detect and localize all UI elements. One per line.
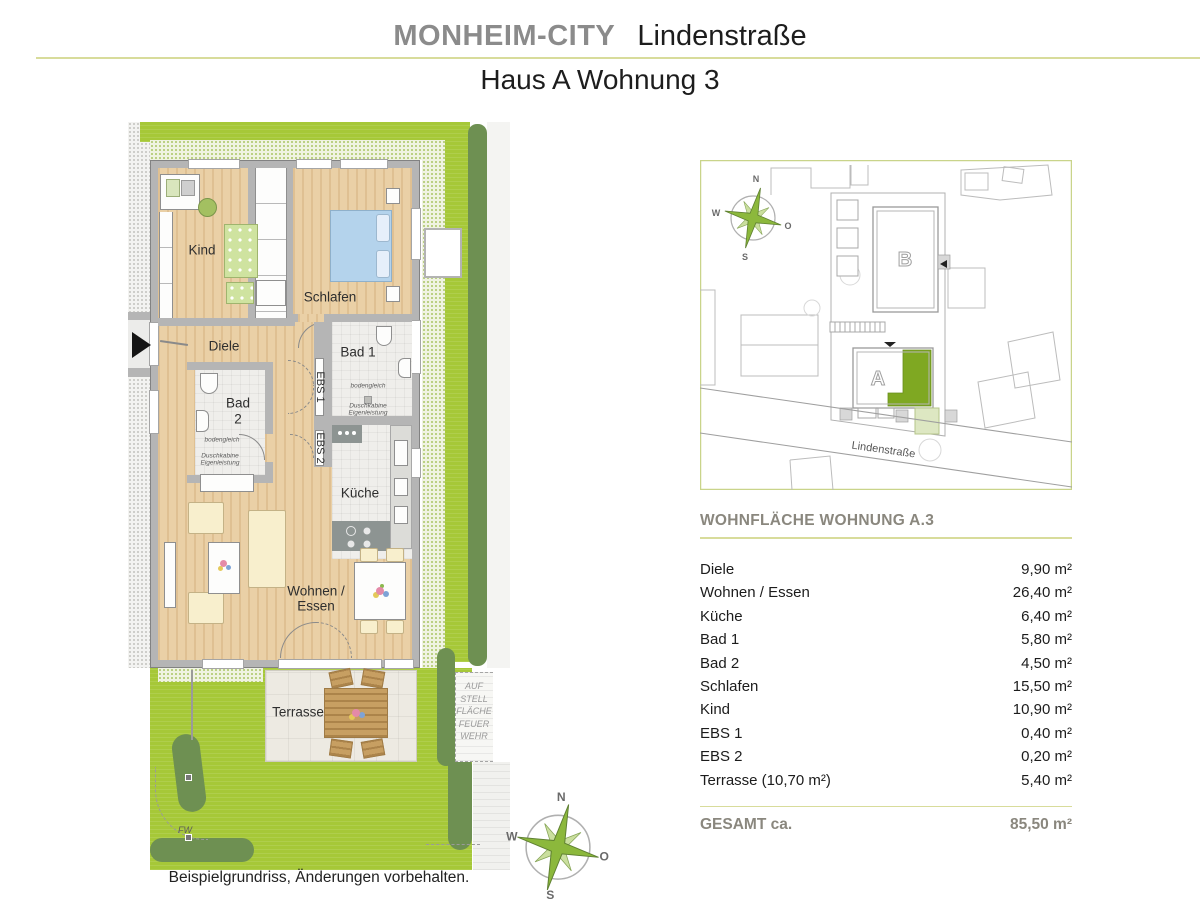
row-value: 0,20 m² <box>1021 748 1072 771</box>
hedge-right <box>468 124 487 666</box>
row-label: Bad 1 <box>700 631 739 654</box>
wall-bad1-bottom <box>324 416 412 425</box>
kitchen-appliance <box>394 478 408 496</box>
compass-label-s: S <box>546 888 554 900</box>
table-row: Terrasse (10,70 m²)5,40 m² <box>700 772 1072 795</box>
entrance-wall-stub <box>128 368 150 377</box>
flower-decor <box>376 587 384 595</box>
window <box>411 208 421 260</box>
room-label-bad2-num: 2 <box>234 412 242 427</box>
disclaimer-caption: Beispielgrundriss, Änderungen vorbehalte… <box>128 869 510 887</box>
offsite-area <box>487 122 510 668</box>
kitchen-counter-corner <box>332 425 362 443</box>
area-table-rule <box>700 537 1072 539</box>
siteplan-compass-o: O <box>784 221 791 231</box>
unit-subtitle: Haus A Wohnung 3 <box>0 64 1200 96</box>
window <box>411 320 421 374</box>
window <box>149 390 159 434</box>
room-label-bad2: Bad <box>226 396 250 411</box>
firelane-line: STELL <box>455 693 493 706</box>
firelane-line: AUF <box>455 680 493 693</box>
wall-bad2-top <box>187 362 273 370</box>
table-row: EBS 20,20 m² <box>700 748 1072 771</box>
firelane-line: FLÄCHE <box>455 705 493 718</box>
room-label-kind: Kind <box>188 243 215 258</box>
terrace-door <box>278 659 382 669</box>
lawn-top <box>140 122 470 142</box>
nightstand <box>386 188 400 204</box>
door-gap-schlafen <box>298 314 324 322</box>
page: MONHEIM-CITY Lindenstraße Haus A Wohnung… <box>0 0 1200 900</box>
row-label: Schlafen <box>700 678 758 701</box>
building-b-label: B <box>898 249 912 271</box>
dining-chair <box>386 620 404 634</box>
wall-kind-bottom <box>158 318 295 326</box>
bad2-note: bodengleich <box>204 437 239 444</box>
room-label-diele: Diele <box>209 339 240 354</box>
entrance-wall-stub <box>128 312 150 320</box>
terrace-door <box>202 659 244 669</box>
gravel-top <box>150 140 422 160</box>
room-label-wohnen1: Wohnen / <box>287 584 345 599</box>
gravel-right <box>422 140 445 670</box>
compass-star <box>507 794 609 900</box>
kitchen-sink <box>394 440 408 466</box>
row-value: 0,40 m² <box>1021 725 1072 748</box>
floor-plan: AUF STELL FLÄCHE FEUER WEHR FW <box>128 122 510 870</box>
area-table-total: GESAMT ca. 85,50 m² <box>700 807 1072 834</box>
flower-decor <box>352 709 360 717</box>
terrace-chair <box>329 739 353 759</box>
firelane-line: FEUER <box>455 718 493 731</box>
row-label: Wohnen / Essen <box>700 584 810 607</box>
compass-rose: N W O S <box>503 790 613 900</box>
bad2-note: Eigenleistung <box>200 460 239 467</box>
header-divider <box>36 57 1200 59</box>
table-row: Wohnen / Essen26,40 m² <box>700 584 1072 607</box>
area-table-rows: Diele9,90 m² Wohnen / Essen26,40 m² Küch… <box>700 561 1072 795</box>
row-label: Küche <box>700 608 743 631</box>
hedge-low <box>448 754 472 850</box>
table-row: Küche6,40 m² <box>700 608 1072 631</box>
desk-papers <box>166 179 180 197</box>
table-row: Kind10,90 m² <box>700 701 1072 724</box>
dining-chair <box>360 548 378 562</box>
bad1-note: Eigenleistung <box>348 410 387 417</box>
table-row: EBS 10,40 m² <box>700 725 1072 748</box>
sink <box>196 410 209 432</box>
window <box>340 159 388 169</box>
total-label: GESAMT ca. <box>700 816 792 834</box>
stairs-strip <box>830 322 885 332</box>
boundary-dashed <box>426 844 480 845</box>
row-value: 6,40 m² <box>1021 608 1072 631</box>
room-label-schlafen: Schlafen <box>304 290 357 305</box>
window <box>188 159 240 169</box>
compass-star-major <box>507 794 609 900</box>
gravel-under-wall <box>158 668 263 682</box>
terrace-door <box>384 659 414 669</box>
building-a-label: A <box>871 368 885 390</box>
row-value: 4,50 m² <box>1021 655 1072 678</box>
table-row: Schlafen15,50 m² <box>700 678 1072 701</box>
table-row: Diele9,90 m² <box>700 561 1072 584</box>
row-value: 9,90 m² <box>1021 561 1072 584</box>
row-label: EBS 2 <box>700 748 743 771</box>
desk-papers <box>181 180 195 196</box>
row-label: Kind <box>700 701 730 724</box>
table-row: Bad 15,80 m² <box>700 631 1072 654</box>
garage-row <box>837 200 858 276</box>
bush-band <box>150 838 254 862</box>
kitchen-appliance <box>394 506 408 524</box>
armchair <box>188 592 224 624</box>
row-value: 10,90 m² <box>1013 701 1072 724</box>
siteplan-compass-s: S <box>742 252 748 262</box>
room-label-bad1: Bad 1 <box>340 345 375 360</box>
total-value: 85,50 m² <box>1010 816 1072 834</box>
entrance-arrow-icon <box>132 332 151 358</box>
tree-line <box>191 670 193 740</box>
row-label: EBS 1 <box>700 725 743 748</box>
dining-chair <box>360 620 378 634</box>
outside-path <box>128 122 150 668</box>
row-value: 5,80 m² <box>1021 631 1072 654</box>
brand-title: MONHEIM-CITY <box>393 20 615 52</box>
sofa <box>248 510 286 588</box>
lawn-right <box>445 128 470 662</box>
coffee-table <box>208 542 240 594</box>
stove-burner <box>346 526 356 536</box>
hedge-mid <box>437 648 455 766</box>
wall-bad2-right <box>265 362 273 483</box>
row-label: Terrasse (10,70 m²) <box>700 772 831 795</box>
toilet <box>200 373 218 394</box>
bad1-note: Duschkabine <box>349 403 387 410</box>
kind-dresser <box>256 280 286 306</box>
project-title: Lindenstraße <box>637 20 806 52</box>
compass-label-o: O <box>599 849 608 863</box>
kitchen-counter-stove <box>332 521 390 551</box>
row-value: 5,40 m² <box>1021 772 1072 795</box>
pillow <box>376 250 390 278</box>
wall-closet-schlafen <box>287 168 293 322</box>
sideboard <box>200 474 254 492</box>
door-gap-bad2 <box>265 434 273 462</box>
survey-dot <box>185 774 192 781</box>
hob-dots <box>338 431 342 435</box>
neighbor-terrace <box>424 228 462 278</box>
area-table-title: WOHNFLÄCHE WOHNUNG A.3 <box>700 512 1072 530</box>
room-label-ebs1: EBS 1 <box>314 371 326 402</box>
dining-chair <box>386 548 404 562</box>
firelane-text: AUF STELL FLÄCHE FEUER WEHR <box>455 680 493 743</box>
desk-chair <box>198 198 217 217</box>
siteplan-compass-w: W <box>712 208 721 218</box>
room-label-terrasse: Terrasse <box>272 705 324 720</box>
row-value: 15,50 m² <box>1013 678 1072 701</box>
nightstand <box>386 286 400 302</box>
survey-dot <box>185 834 192 841</box>
bad1-note: bodengleich <box>350 383 385 390</box>
kind-cabinet <box>159 212 173 318</box>
room-label-kueche: Küche <box>341 486 379 501</box>
area-table: WOHNFLÄCHE WOHNUNG A.3 Diele9,90 m² Wohn… <box>700 512 1072 834</box>
compass-label-w: W <box>506 830 518 844</box>
room-label-wohnen2: Essen <box>297 599 335 614</box>
row-label: Diele <box>700 561 734 584</box>
kind-bed <box>224 224 258 278</box>
sink <box>398 358 411 378</box>
terrace-chair <box>361 668 386 689</box>
tv-board <box>164 542 176 608</box>
flower-decor <box>220 560 227 567</box>
table-row: Bad 24,50 m² <box>700 655 1072 678</box>
room-label-ebs2: EBS 2 <box>314 432 326 463</box>
compass-label-n: N <box>557 790 566 804</box>
window <box>411 448 421 478</box>
fw-label: FW <box>178 825 192 835</box>
row-value: 26,40 m² <box>1013 584 1072 607</box>
site-plan-drawing: Lindenstraße B A N W O S <box>700 160 1072 490</box>
pillow <box>376 214 390 242</box>
page-title: MONHEIM-CITY Lindenstraße <box>0 20 1200 53</box>
firelane-line: WEHR <box>455 730 493 743</box>
site-plan: Lindenstraße B A N W O S <box>700 160 1072 490</box>
siteplan-compass-n: N <box>753 174 760 184</box>
bad2-note: Duschkabine <box>201 453 239 460</box>
toilet <box>376 326 392 346</box>
window <box>296 159 332 169</box>
armchair <box>188 502 224 534</box>
row-label: Bad 2 <box>700 655 739 678</box>
kind-crib <box>226 282 254 304</box>
